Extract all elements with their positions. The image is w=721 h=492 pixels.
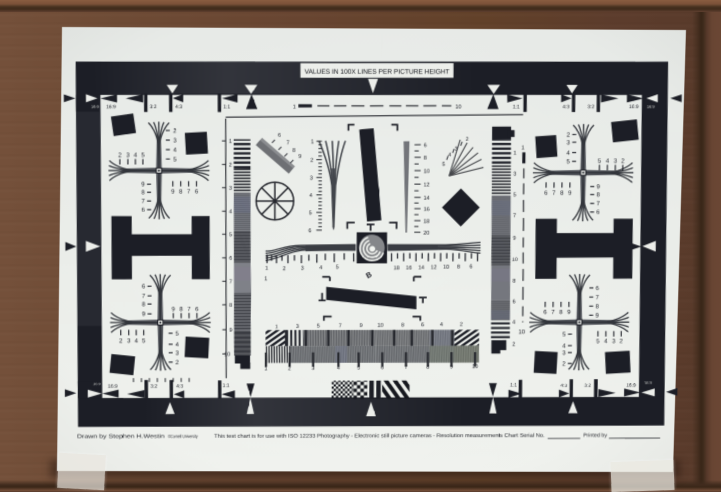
svg-text:2: 2 — [175, 359, 179, 366]
svg-text:14: 14 — [424, 196, 430, 202]
svg-text:16:9: 16:9 — [644, 380, 652, 385]
svg-text:4:3: 4:3 — [560, 383, 567, 389]
svg-text:6: 6 — [229, 256, 232, 262]
svg-text:8: 8 — [292, 148, 295, 154]
svg-text:1: 1 — [521, 145, 524, 151]
svg-text:3: 3 — [127, 338, 131, 345]
svg-text:6: 6 — [421, 322, 424, 328]
svg-text:4: 4 — [562, 343, 566, 350]
svg-text:16: 16 — [406, 265, 412, 271]
svg-text:3: 3 — [310, 176, 313, 182]
svg-text:5: 5 — [566, 159, 570, 166]
svg-text:9: 9 — [567, 309, 571, 316]
svg-text:4:3: 4:3 — [176, 384, 183, 390]
svg-text:4: 4 — [512, 320, 515, 326]
svg-text:9: 9 — [172, 306, 176, 313]
svg-text:2: 2 — [118, 152, 122, 159]
svg-text:9: 9 — [229, 328, 232, 334]
svg-text:6: 6 — [424, 143, 427, 149]
svg-text:This test chart is for use wit: This test chart is for use with ISO 1223… — [214, 433, 545, 440]
svg-text:4:3: 4:3 — [175, 104, 182, 110]
svg-text:9: 9 — [450, 364, 453, 370]
svg-text:7: 7 — [142, 293, 146, 300]
svg-text:4: 4 — [319, 265, 322, 271]
svg-text:16:9: 16:9 — [108, 384, 118, 390]
svg-text:Printed by: Printed by — [583, 433, 607, 439]
svg-text:10: 10 — [443, 265, 449, 271]
svg-text:2: 2 — [173, 128, 177, 135]
svg-text:5: 5 — [142, 338, 146, 345]
svg-text:4: 4 — [337, 366, 340, 372]
svg-text:5: 5 — [175, 331, 179, 338]
svg-text:4: 4 — [229, 209, 232, 215]
svg-text:8: 8 — [229, 303, 232, 309]
svg-text:4: 4 — [448, 152, 451, 158]
svg-text:4: 4 — [173, 147, 177, 154]
svg-text:9: 9 — [513, 236, 516, 242]
svg-text:10: 10 — [455, 104, 461, 110]
svg-text:18: 18 — [393, 266, 399, 272]
svg-text:8: 8 — [560, 190, 564, 197]
svg-text:16:9: 16:9 — [106, 104, 116, 110]
svg-text:16:9: 16:9 — [626, 383, 636, 389]
svg-text:7: 7 — [229, 279, 232, 285]
svg-text:3:2: 3:2 — [150, 104, 157, 110]
svg-text:7: 7 — [187, 188, 191, 195]
svg-text:10: 10 — [472, 364, 478, 370]
svg-text:4: 4 — [135, 338, 139, 345]
svg-text:4: 4 — [134, 152, 138, 159]
svg-text:16:9: 16:9 — [91, 104, 100, 109]
svg-text:8: 8 — [401, 323, 404, 329]
svg-text:2: 2 — [310, 158, 313, 164]
svg-text:7: 7 — [551, 309, 555, 316]
svg-text:1: 1 — [229, 139, 232, 145]
svg-text:1: 1 — [275, 324, 278, 330]
svg-text:3: 3 — [455, 146, 458, 152]
svg-text:2: 2 — [460, 322, 463, 328]
svg-text:3: 3 — [312, 366, 315, 372]
svg-text:8: 8 — [457, 264, 460, 270]
svg-text:1:1: 1:1 — [510, 382, 517, 388]
svg-text:1: 1 — [513, 151, 516, 157]
svg-text:7: 7 — [339, 323, 342, 329]
svg-text:9: 9 — [171, 188, 175, 195]
svg-text:10: 10 — [224, 352, 230, 358]
svg-text:9: 9 — [595, 312, 599, 319]
svg-text:5: 5 — [229, 232, 232, 238]
svg-text:7: 7 — [187, 306, 191, 313]
svg-text:2: 2 — [512, 342, 515, 348]
svg-text:©Cornell University: ©Cornell University — [168, 433, 198, 440]
svg-text:2: 2 — [466, 137, 469, 143]
svg-text:2: 2 — [229, 163, 232, 169]
svg-text:16:9: 16:9 — [629, 104, 639, 110]
svg-text:4:3: 4:3 — [563, 104, 570, 110]
svg-text:5: 5 — [309, 211, 312, 217]
svg-text:8: 8 — [142, 301, 146, 308]
svg-text:2: 2 — [288, 366, 291, 372]
svg-text:7: 7 — [286, 140, 289, 146]
svg-text:5: 5 — [173, 156, 177, 163]
svg-text:8: 8 — [179, 306, 183, 313]
svg-text:16: 16 — [423, 207, 429, 213]
svg-text:3:2: 3:2 — [584, 383, 591, 389]
svg-text:5: 5 — [141, 152, 145, 159]
svg-text:9: 9 — [141, 181, 145, 188]
svg-text:1:1: 1:1 — [223, 104, 230, 110]
svg-text:7: 7 — [404, 365, 407, 371]
svg-text:3: 3 — [296, 324, 299, 330]
svg-text:3: 3 — [229, 186, 232, 192]
svg-text:5: 5 — [442, 162, 445, 168]
svg-text:6: 6 — [544, 190, 548, 197]
svg-text:1:1: 1:1 — [513, 104, 520, 110]
svg-text:3: 3 — [567, 140, 571, 147]
svg-text:6: 6 — [512, 299, 515, 305]
svg-text:3:2: 3:2 — [150, 384, 157, 390]
svg-text:4: 4 — [566, 150, 570, 157]
svg-text:1:1: 1:1 — [223, 383, 230, 389]
svg-text:2: 2 — [283, 266, 286, 272]
svg-text:10: 10 — [512, 257, 518, 263]
svg-text:10: 10 — [377, 323, 383, 329]
svg-text:8: 8 — [559, 309, 563, 316]
svg-text:4: 4 — [175, 342, 179, 349]
svg-text:5: 5 — [562, 331, 566, 338]
svg-text:6: 6 — [308, 228, 311, 234]
svg-text:6: 6 — [142, 283, 146, 290]
svg-text:16:9: 16:9 — [93, 381, 102, 386]
svg-text:6: 6 — [278, 133, 281, 139]
svg-text:2: 2 — [119, 338, 123, 345]
svg-text:8: 8 — [141, 189, 145, 196]
svg-text:1: 1 — [293, 104, 296, 110]
svg-text:6: 6 — [469, 264, 472, 270]
svg-text:2: 2 — [567, 132, 571, 139]
svg-text:1: 1 — [264, 276, 267, 282]
svg-text:5: 5 — [357, 365, 360, 371]
svg-text:16:9: 16:9 — [647, 104, 656, 109]
svg-text:9: 9 — [360, 323, 363, 329]
svg-text:8: 8 — [513, 279, 516, 285]
svg-text:8: 8 — [426, 365, 429, 371]
svg-text:12: 12 — [431, 265, 437, 271]
svg-text:6: 6 — [195, 188, 199, 195]
svg-text:9: 9 — [142, 311, 146, 318]
svg-text:3: 3 — [175, 350, 179, 357]
svg-text:20: 20 — [423, 231, 429, 237]
svg-text:10: 10 — [424, 169, 430, 175]
svg-text:1: 1 — [311, 139, 314, 145]
svg-text:7: 7 — [552, 190, 556, 197]
svg-text:VALUES IN 100X LINES PER PICTU: VALUES IN 100X LINES PER PICTURE HEIGHT — [304, 69, 449, 76]
svg-text:7: 7 — [513, 213, 516, 219]
svg-text:9: 9 — [298, 154, 301, 160]
svg-text:9: 9 — [568, 190, 572, 197]
svg-text:4: 4 — [440, 322, 443, 328]
svg-text:3: 3 — [562, 350, 566, 357]
svg-text:3:2: 3:2 — [587, 104, 594, 110]
svg-text:7: 7 — [141, 198, 145, 205]
svg-text:3: 3 — [126, 152, 130, 159]
svg-text:5: 5 — [513, 192, 516, 198]
svg-text:12: 12 — [424, 182, 430, 188]
svg-text:6: 6 — [141, 207, 145, 214]
svg-text:6: 6 — [543, 309, 547, 316]
svg-text:1: 1 — [265, 266, 268, 272]
svg-text:3: 3 — [173, 137, 177, 144]
svg-text:10: 10 — [518, 330, 525, 336]
svg-text:8: 8 — [424, 156, 427, 162]
svg-text:3: 3 — [513, 172, 516, 178]
svg-text:1: 1 — [264, 366, 267, 372]
svg-text:2: 2 — [562, 361, 566, 368]
svg-text:8: 8 — [179, 188, 183, 195]
svg-text:14: 14 — [418, 265, 424, 271]
svg-text:5: 5 — [317, 324, 320, 330]
svg-text:18: 18 — [423, 219, 429, 225]
svg-text:6: 6 — [195, 306, 199, 313]
svg-text:4: 4 — [309, 193, 312, 199]
svg-text:5: 5 — [336, 265, 339, 271]
svg-text:6: 6 — [381, 365, 384, 371]
svg-text:Drawn by Stephen H.Westin: Drawn by Stephen H.Westin — [77, 434, 164, 440]
svg-text:3: 3 — [301, 266, 304, 272]
